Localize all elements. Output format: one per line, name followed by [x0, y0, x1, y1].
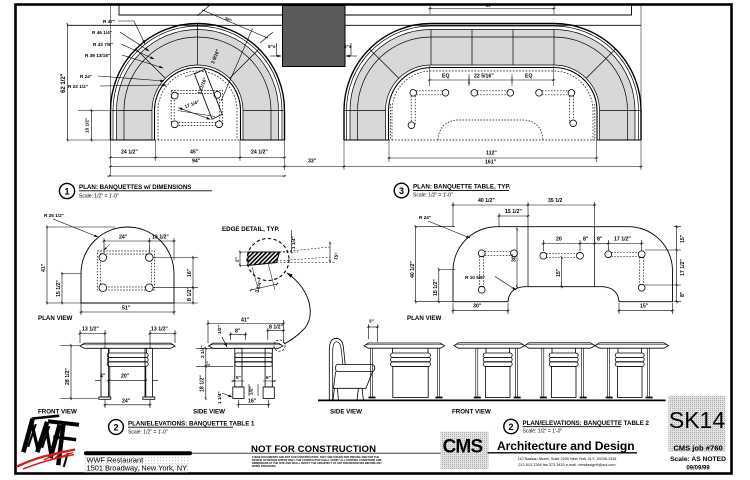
- svg-text:41": 41": [241, 318, 250, 324]
- svg-text:2 1/4": 2 1/4": [200, 345, 205, 358]
- svg-text:24": 24": [122, 399, 131, 405]
- svg-text:17 1/2": 17 1/2": [614, 237, 631, 243]
- svg-text:20: 20: [556, 237, 562, 243]
- svg-text:4": 4": [100, 374, 106, 380]
- svg-text:R 10 5/8": R 10 5/8": [465, 275, 485, 280]
- svg-text:R 22 1/2": R 22 1/2": [68, 84, 88, 89]
- svg-text:94": 94": [192, 159, 201, 165]
- svg-text:R 46 1/4": R 46 1/4": [92, 30, 112, 35]
- svg-text:R 47": R 47": [103, 19, 115, 24]
- svg-text:16": 16": [187, 268, 193, 277]
- svg-text:SK14: SK14: [669, 407, 725, 433]
- svg-text:8": 8": [597, 237, 603, 243]
- svg-text:EQ: EQ: [442, 74, 450, 80]
- svg-text:16": 16": [248, 399, 257, 405]
- svg-text:15 1/2": 15 1/2": [85, 118, 90, 133]
- svg-text:28 1/2": 28 1/2": [65, 368, 71, 385]
- svg-text:40 1/2": 40 1/2": [410, 261, 416, 278]
- svg-text:15 1/2": 15 1/2": [433, 279, 439, 296]
- svg-text:Scale: 1/2" = 1'-0": Scale: 1/2" = 1'-0": [523, 429, 563, 435]
- svg-text:Architecture and Design: Architecture and Design: [497, 439, 634, 453]
- svg-text:30": 30": [473, 304, 482, 310]
- svg-text:1 1/4": 1 1/4": [291, 236, 296, 249]
- svg-text:PLAN/ELEVATIONS: BANQUETTE TAB: PLAN/ELEVATIONS: BANQUETTE TABLE 2: [523, 420, 650, 427]
- svg-text:2: 2: [113, 423, 118, 433]
- svg-text:8 1/2": 8 1/2": [187, 286, 193, 301]
- svg-text:110 Nassau Street, Suite 2200: 110 Nassau Street, Suite 2200 New York, …: [518, 457, 617, 461]
- svg-text:EDGE DETAIL, TYP.: EDGE DETAIL, TYP.: [222, 226, 280, 233]
- svg-text:6": 6": [266, 375, 271, 380]
- svg-text:FRONT VIEW: FRONT VIEW: [452, 409, 491, 416]
- svg-text:1/2": 1/2": [249, 386, 254, 395]
- svg-text:3": 3": [369, 319, 374, 324]
- svg-text:35 1/2: 35 1/2: [548, 198, 563, 204]
- svg-text:NOT FOR CONSTRUCTION: NOT FOR CONSTRUCTION: [251, 444, 376, 455]
- svg-text:33": 33": [308, 159, 317, 165]
- svg-text:18 1/2": 18 1/2": [200, 375, 206, 392]
- svg-text:8": 8": [680, 291, 686, 297]
- svg-text:PLAN VIEW: PLAN VIEW: [38, 315, 73, 322]
- svg-text:8 1/2": 8 1/2": [269, 325, 284, 331]
- svg-text:PLAN: BANQUETTES w/ DIMENSIONS: PLAN: BANQUETTES w/ DIMENSIONS: [79, 184, 191, 191]
- svg-text:17 1/2": 17 1/2": [680, 259, 686, 276]
- svg-text:8": 8": [583, 237, 589, 243]
- svg-text:8": 8": [235, 329, 241, 335]
- svg-text:PLAN/ELEVATIONS: BANQUETTE TAB: PLAN/ELEVATIONS: BANQUETTE TABLE 1: [128, 421, 255, 428]
- svg-text:R 25 1/2": R 25 1/2": [44, 213, 64, 218]
- svg-text:Scale: 1/2" = 1'-0": Scale: 1/2" = 1'-0": [79, 194, 119, 200]
- svg-text:R 24": R 24": [80, 74, 92, 79]
- svg-text:CMS job #760: CMS job #760: [673, 444, 722, 453]
- svg-text:SIDE VIEW: SIDE VIEW: [193, 409, 225, 416]
- svg-text:20": 20": [121, 374, 130, 380]
- svg-text:13 1/2": 13 1/2": [152, 235, 169, 241]
- svg-text:24 1/2": 24 1/2": [251, 150, 268, 156]
- svg-text:24": 24": [119, 235, 128, 241]
- svg-text:FRONT VIEW: FRONT VIEW: [38, 409, 77, 416]
- svg-text:3: 3: [399, 186, 404, 196]
- svg-text:2": 2": [206, 361, 211, 366]
- svg-text:EQ: EQ: [525, 74, 533, 80]
- svg-text:PLAN VIEW: PLAN VIEW: [407, 315, 442, 322]
- svg-text:30": 30": [512, 253, 518, 262]
- svg-text:1: 1: [64, 187, 69, 197]
- svg-text:PLAN: BANQUETTE TABLE, TYP.: PLAN: BANQUETTE TABLE, TYP.: [413, 184, 511, 191]
- svg-text:R 39 13/16": R 39 13/16": [85, 53, 110, 58]
- svg-text:15 1/2": 15 1/2": [505, 209, 522, 215]
- svg-text:6"±: 6"±: [344, 44, 352, 49]
- svg-text:13 1/2": 13 1/2": [82, 327, 99, 333]
- svg-text:09/09/99: 09/09/99: [686, 466, 710, 472]
- svg-text:R 24": R 24": [419, 215, 431, 220]
- svg-text:6"±: 6"±: [268, 44, 276, 49]
- svg-text:41": 41": [41, 263, 47, 272]
- svg-text:15 1/2": 15 1/2": [56, 280, 62, 297]
- svg-text:5": 5": [236, 375, 241, 380]
- svg-text:62 1/2": 62 1/2": [61, 73, 67, 93]
- svg-text:13 1/2": 13 1/2": [151, 327, 168, 333]
- svg-text:15": 15": [556, 268, 562, 277]
- svg-text:Scale: 1/2" = 1'-0": Scale: 1/2" = 1'-0": [413, 193, 453, 199]
- svg-text:45": 45": [190, 150, 199, 156]
- svg-text:WORK PROCEEDS.: WORK PROCEEDS.: [252, 464, 276, 468]
- svg-text:1 1/4": 1 1/4": [217, 391, 222, 404]
- svg-text:22 5/16": 22 5/16": [474, 74, 494, 80]
- svg-text:SIDE VIEW: SIDE VIEW: [330, 409, 362, 416]
- svg-text:15": 15": [680, 234, 686, 243]
- svg-text:1501 Broadway, New York, NY: 1501 Broadway, New York, NY: [87, 464, 188, 473]
- svg-text:2": 2": [235, 257, 240, 262]
- svg-text:Scale: AS NOTED: Scale: AS NOTED: [670, 456, 726, 463]
- svg-text:67": 67": [486, 3, 493, 8]
- svg-text:161": 161": [485, 160, 497, 166]
- svg-text:24 1/2": 24 1/2": [121, 150, 138, 156]
- svg-text:2: 2: [508, 422, 513, 432]
- svg-text:112": 112": [486, 151, 497, 157]
- svg-text:212.513.7268 fax 373.3433 e: 212.513.7268 fax 373.3433 e-mail: cmsdes…: [518, 463, 615, 467]
- svg-text:R 43 7/8": R 43 7/8": [93, 42, 113, 47]
- svg-text:51": 51": [122, 306, 131, 312]
- svg-text:CMS: CMS: [443, 437, 483, 458]
- svg-text:1/2": 1/2": [217, 325, 222, 334]
- svg-text:Scale: 1/2" = 1'-0": Scale: 1/2" = 1'-0": [128, 430, 168, 436]
- svg-text:40 1/2": 40 1/2": [478, 198, 495, 204]
- svg-text:15": 15": [640, 304, 649, 310]
